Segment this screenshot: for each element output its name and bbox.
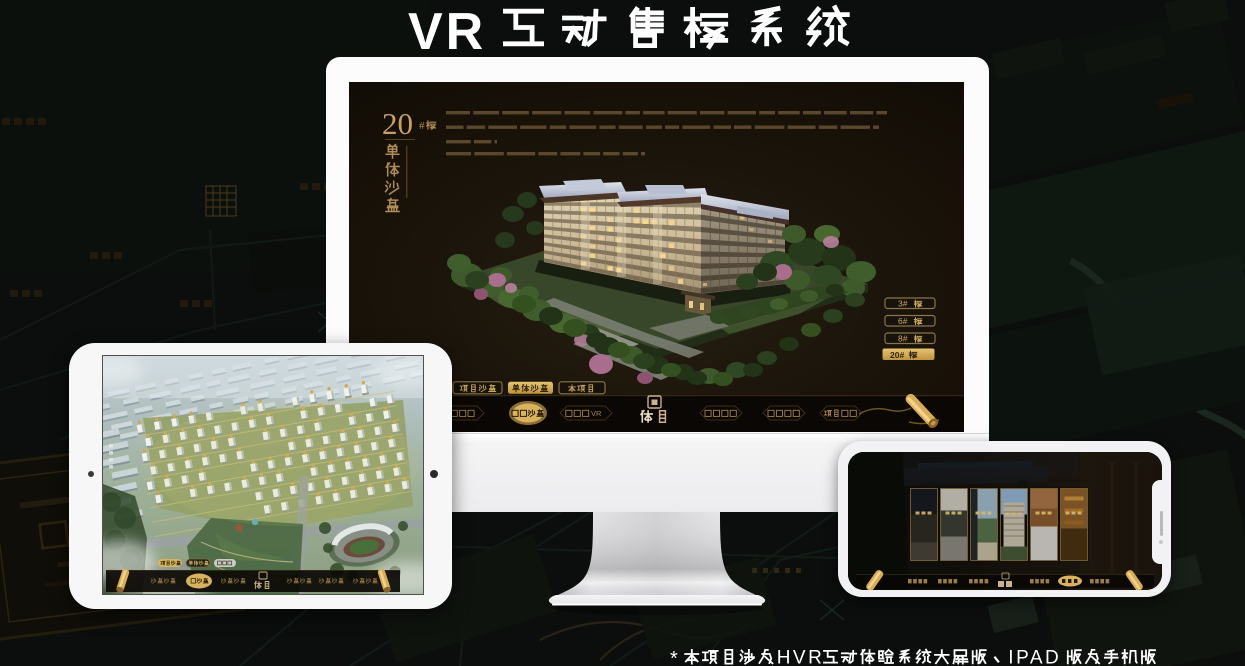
svg-text:*: *	[670, 648, 678, 666]
svg-text:#: #	[419, 120, 425, 132]
svg-text:20: 20	[382, 106, 413, 141]
svg-text:20#: 20#	[890, 350, 904, 360]
svg-text:3#: 3#	[898, 299, 908, 309]
svg-text:VR: VR	[591, 409, 602, 418]
svg-text:HVR: HVR	[777, 648, 825, 666]
svg-text:VR: VR	[408, 3, 486, 60]
svg-text:6#: 6#	[898, 316, 908, 326]
svg-text:IPAD: IPAD	[1008, 648, 1061, 666]
svg-text:8#: 8#	[898, 334, 908, 344]
